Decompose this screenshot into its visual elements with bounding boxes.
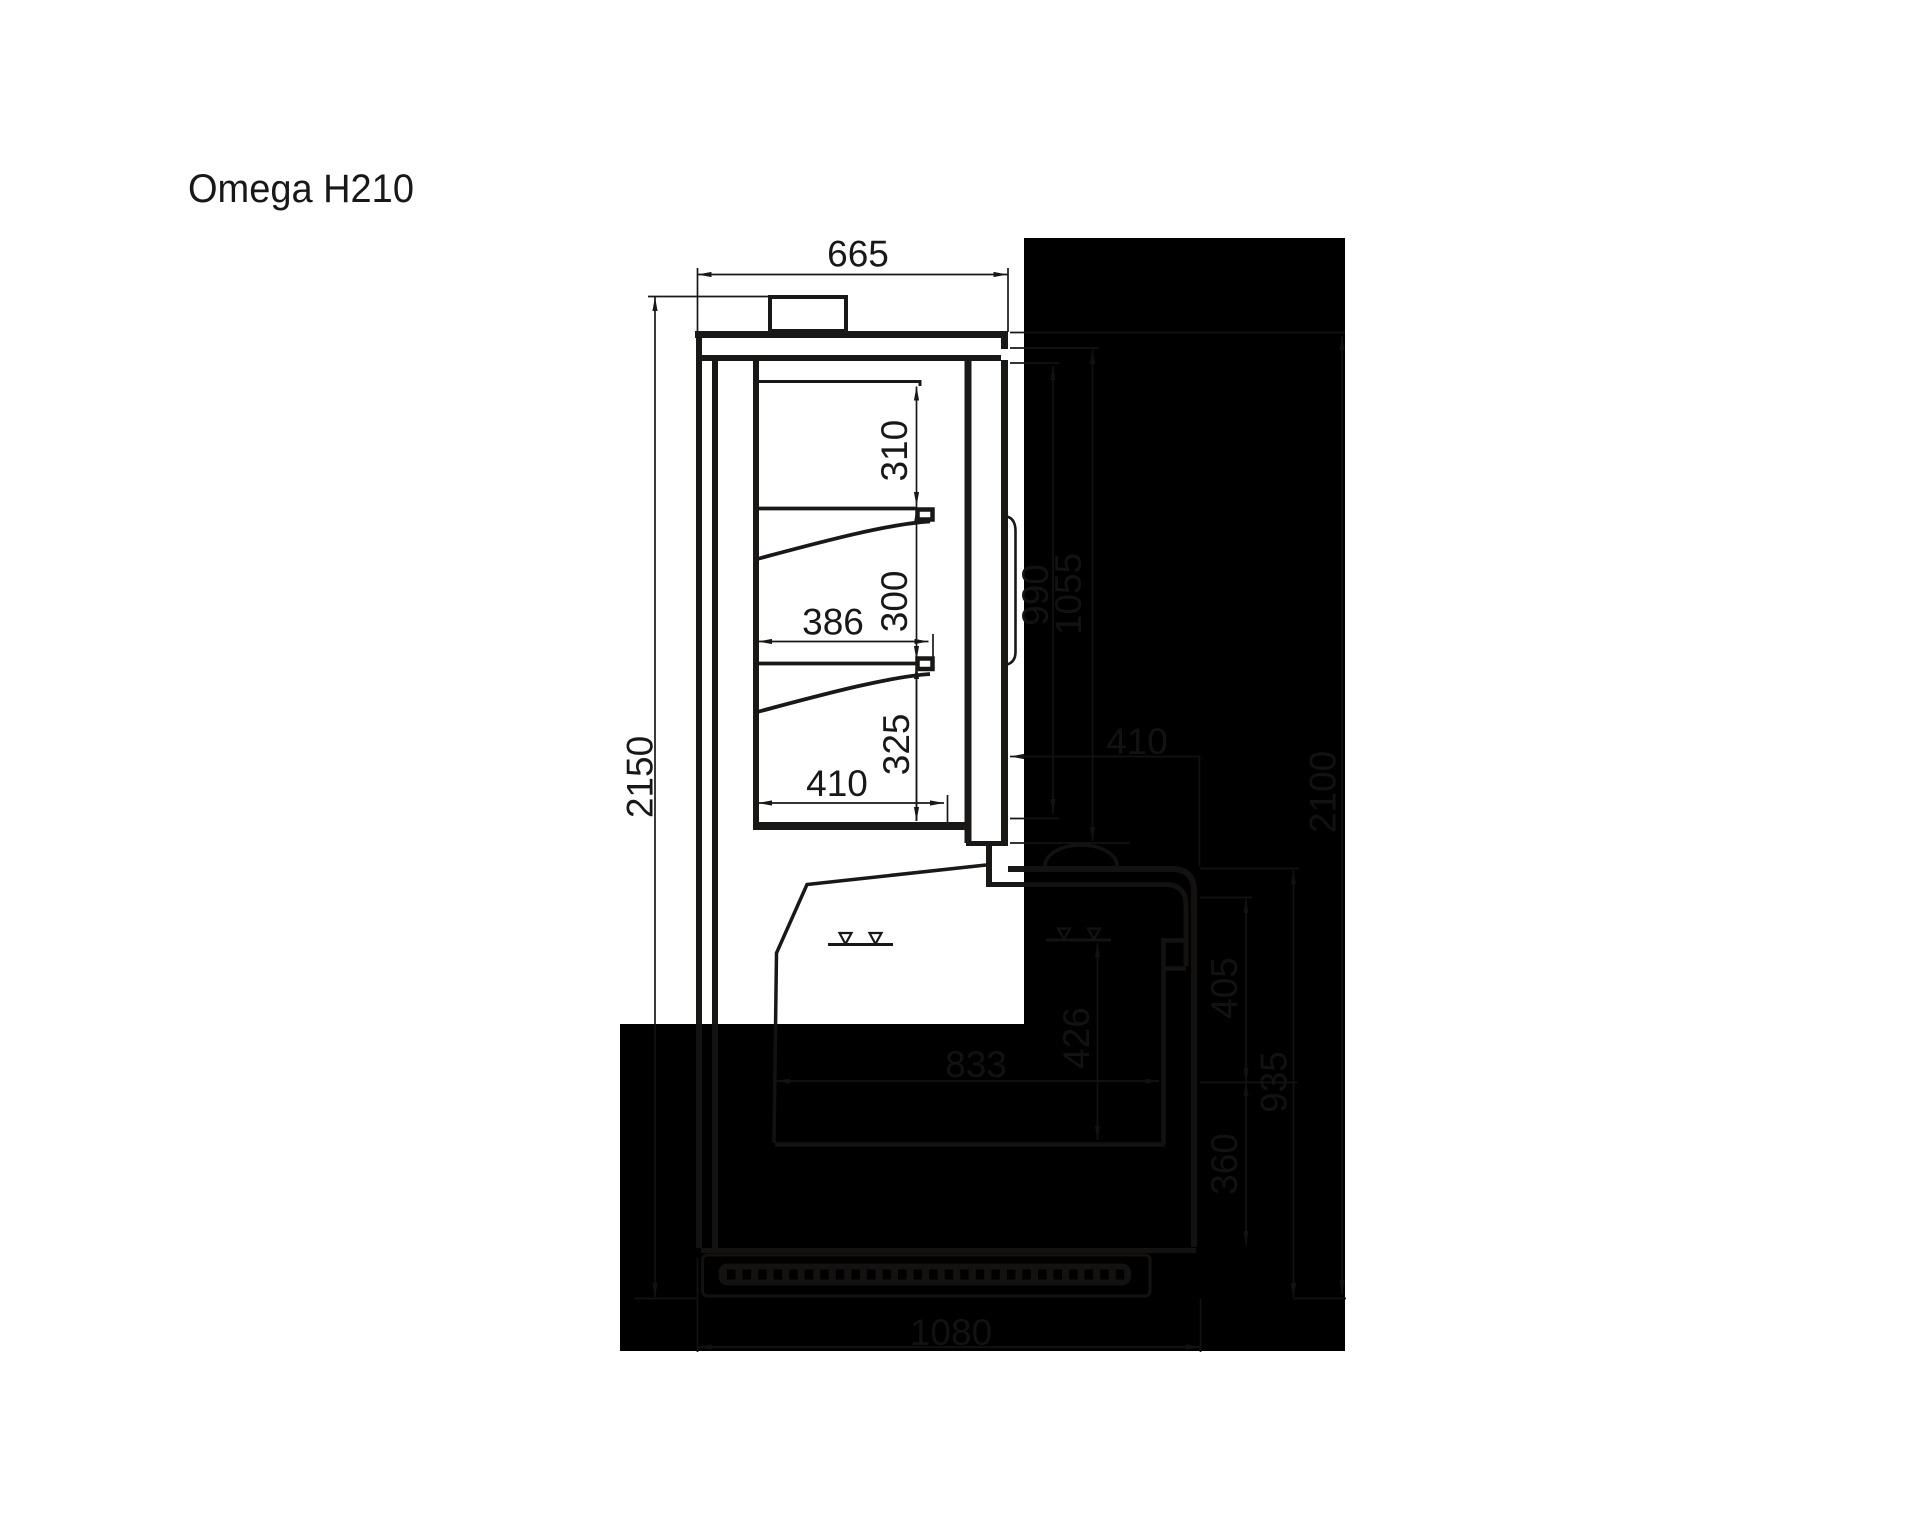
svg-text:325: 325 — [876, 714, 917, 776]
svg-text:386: 386 — [802, 601, 864, 642]
svg-text:665: 665 — [827, 234, 889, 275]
svg-text:410: 410 — [806, 763, 868, 804]
svg-text:2150: 2150 — [620, 736, 661, 818]
svg-text:300: 300 — [874, 571, 915, 633]
svg-text:310: 310 — [874, 420, 915, 482]
svg-text:Omega H210: Omega H210 — [188, 167, 414, 211]
